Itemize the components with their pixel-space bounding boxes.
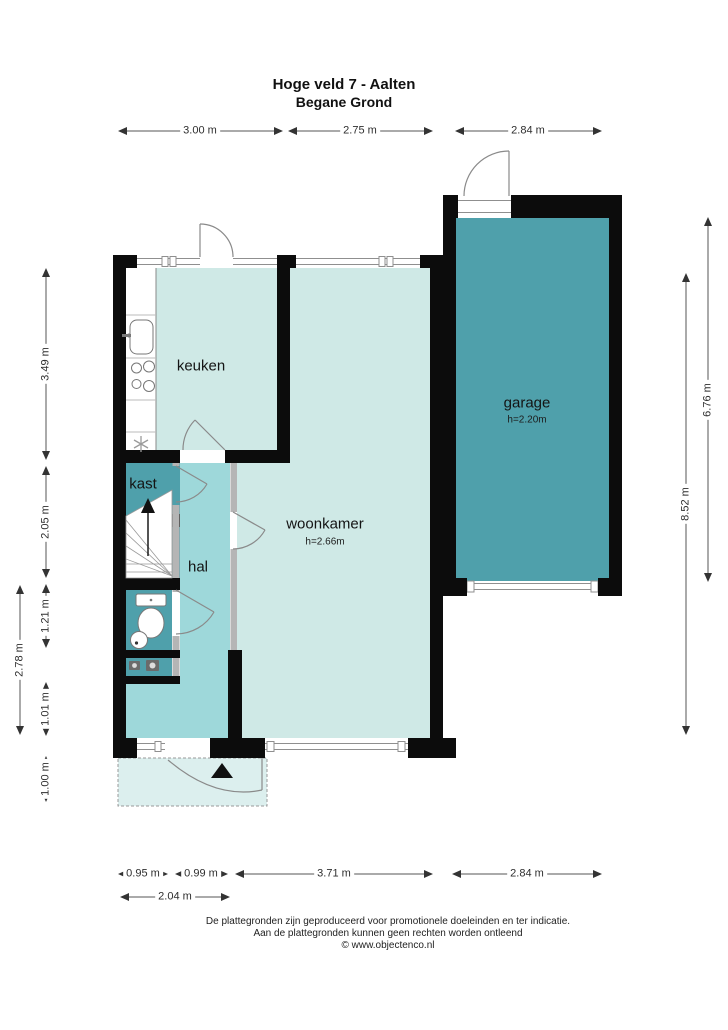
dim-left-1: 3.49 m	[40, 344, 53, 384]
footer-disclaimer-1: De plattegronden zijn geproduceerd voor …	[206, 916, 570, 927]
page-subtitle: Begane Grond	[296, 94, 392, 110]
dim-left-outer: 2.78 m	[14, 640, 27, 680]
label-kast: kast	[129, 476, 157, 493]
dim-left-2: 2.05 m	[40, 502, 53, 542]
label-woonkamer: woonkamer	[286, 516, 364, 533]
page-title: Hoge veld 7 - Aalten	[273, 76, 416, 93]
dim-bottom-2: 0.99 m	[181, 868, 221, 881]
dim-bottom-total: 2.04 m	[155, 891, 195, 904]
label-hal: hal	[188, 559, 208, 576]
label-keuken: keuken	[177, 358, 225, 375]
dim-top-3: 2.84 m	[508, 125, 548, 138]
dim-left-5: 1.00 m	[40, 759, 53, 799]
keuken-back-door	[200, 224, 233, 257]
dim-top-1: 3.00 m	[180, 125, 220, 138]
room-fills	[118, 218, 609, 806]
dim-bottom-4: 2.84 m	[507, 868, 547, 881]
label-garage: garage	[504, 395, 551, 412]
label-woonkamer-height: h=2.66m	[305, 537, 344, 548]
dim-left-4: 1.01 m	[40, 689, 53, 729]
kitchen-sink	[130, 320, 153, 354]
dim-left-3: 1.21 m	[40, 596, 53, 636]
dim-right-inner: 8.52 m	[680, 484, 693, 524]
garage-door	[464, 151, 509, 196]
floorplan-page: Hoge veld 7 - Aalten Begane Grond keuken…	[0, 0, 728, 1030]
dim-top-2: 2.75 m	[340, 125, 380, 138]
toilet-sink	[131, 632, 148, 649]
label-garage-height: h=2.20m	[507, 415, 546, 426]
dim-right-outer: 6.76 m	[702, 380, 715, 420]
kitchen-fixtures	[122, 268, 156, 452]
dim-bottom-1: 0.95 m	[123, 868, 163, 881]
porch-area	[118, 758, 267, 806]
footer-disclaimer-2: Aan de plattegronden kunnen geen rechten…	[253, 928, 522, 939]
dim-bottom-3: 3.71 m	[314, 868, 354, 881]
footer-copyright: © www.objectenco.nl	[342, 940, 435, 951]
kitchen-counter	[126, 268, 156, 450]
